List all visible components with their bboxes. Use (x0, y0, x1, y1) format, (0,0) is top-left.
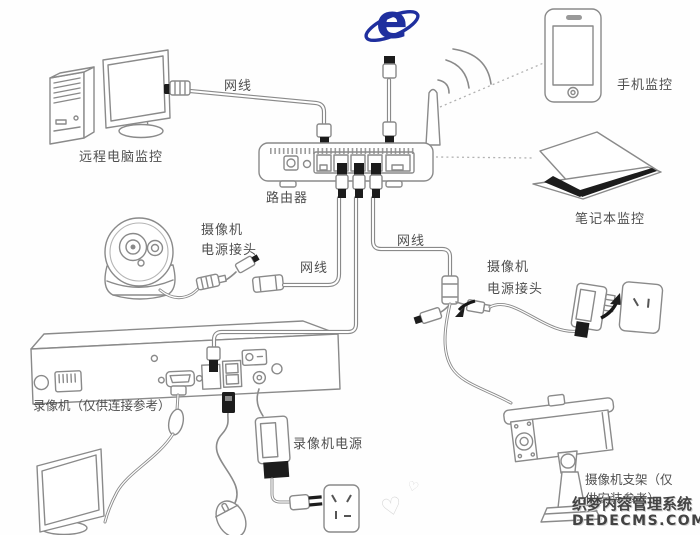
label-dvr-power: 录像机电源 (293, 435, 363, 455)
router-port-plugs (336, 163, 382, 198)
monitor-remote-pc (103, 50, 170, 138)
label-camera-power-right-l1: 摄像机 (487, 260, 529, 275)
label-camera-power-left-l1: 摄像机 (201, 223, 243, 238)
wall-outlet-bottom (324, 485, 359, 532)
wall-outlet-right (619, 281, 663, 333)
camera-power-cable (490, 304, 579, 331)
label-router: 路由器 (266, 189, 308, 209)
label-camera-power-left-l2: 电源接头 (201, 243, 257, 258)
label-remote-pc-monitor: 远程电脑监控 (79, 148, 163, 168)
link-to-laptop (436, 157, 534, 158)
label-camera-power-right-l2: 电源接头 (487, 282, 543, 297)
label-network-cable-dome: 网线 (300, 259, 328, 279)
label-laptop-monitor: 笔记本监控 (575, 210, 645, 230)
router (259, 90, 440, 188)
cable-to-bullet-camera (445, 304, 511, 403)
bullet-camera-pigtail (413, 276, 491, 326)
label-phone-monitor: 手机监控 (617, 76, 673, 96)
watermark: 织梦内容管理系统 DEDECMS.COM (572, 496, 700, 529)
label-dvr: 录像机（仅供连接参考） (33, 396, 171, 415)
tower-pc (50, 67, 94, 144)
dome-camera (105, 218, 175, 299)
label-camera-power-right: 摄像机 电源接头 (487, 257, 543, 301)
wireless-links (436, 62, 546, 158)
label-network-cable-top: 网线 (224, 77, 252, 97)
smartphone (545, 9, 601, 102)
wifi-waves-icon (438, 49, 491, 93)
label-network-cable-right: 网线 (397, 232, 425, 252)
camera-power-adapter (569, 283, 621, 341)
laptop (533, 132, 661, 199)
ie-logo: e (369, 0, 415, 47)
link-to-phone (440, 62, 546, 107)
power-plug (289, 493, 322, 510)
label-camera-power-left: 摄像机 电源接头 (201, 221, 257, 261)
watermark-line1: 织梦内容管理系统 (572, 496, 700, 513)
wiring-diagram: e 远程电脑监控 网线 路由器 手机监控 笔记本监控 摄像机 电源接头 网线 网… (0, 0, 700, 535)
watermark-line2: DEDECMS.COM (572, 513, 700, 529)
monitor-bottom (37, 449, 104, 535)
cable-internet-to-router (383, 56, 396, 147)
router-antenna (426, 90, 440, 146)
label-camera-bracket-l1: 摄像机支架（仅 (585, 472, 673, 487)
mouse (210, 392, 252, 535)
